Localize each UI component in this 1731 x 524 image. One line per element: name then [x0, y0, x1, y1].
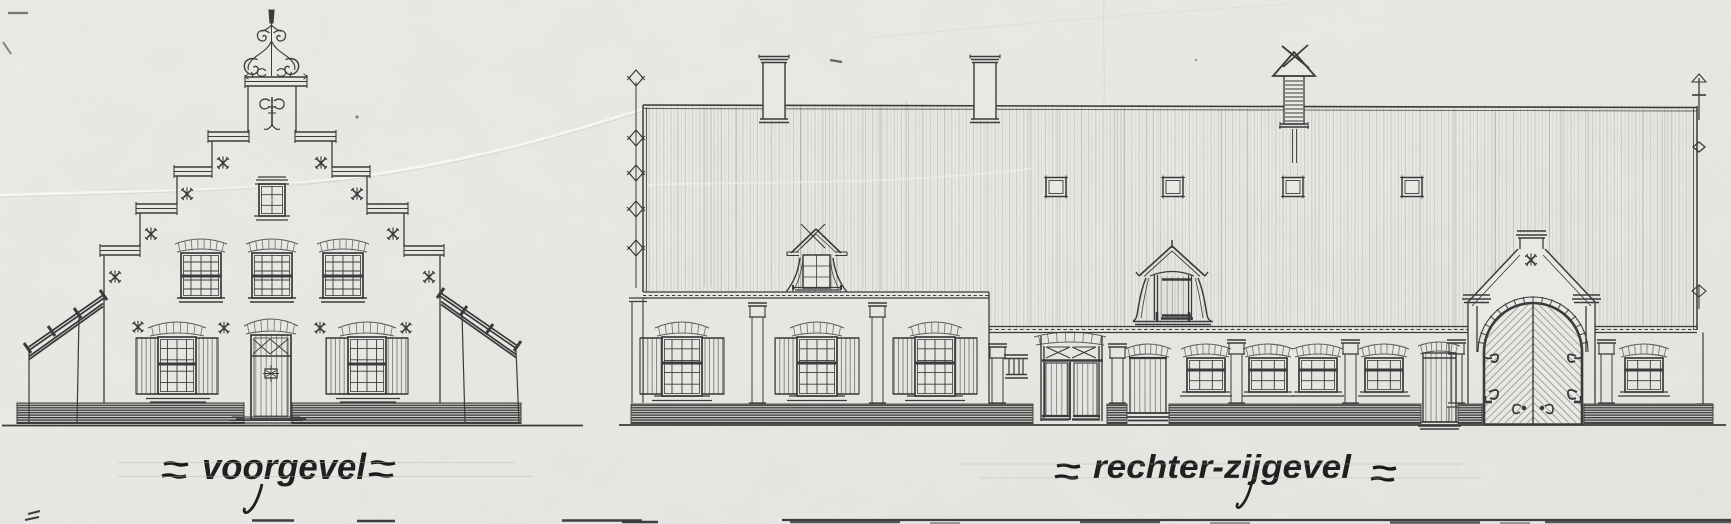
- svg-text:rechter-zijgevel: rechter-zijgevel: [1093, 448, 1352, 485]
- svg-text:voorgevel: voorgevel: [202, 446, 367, 487]
